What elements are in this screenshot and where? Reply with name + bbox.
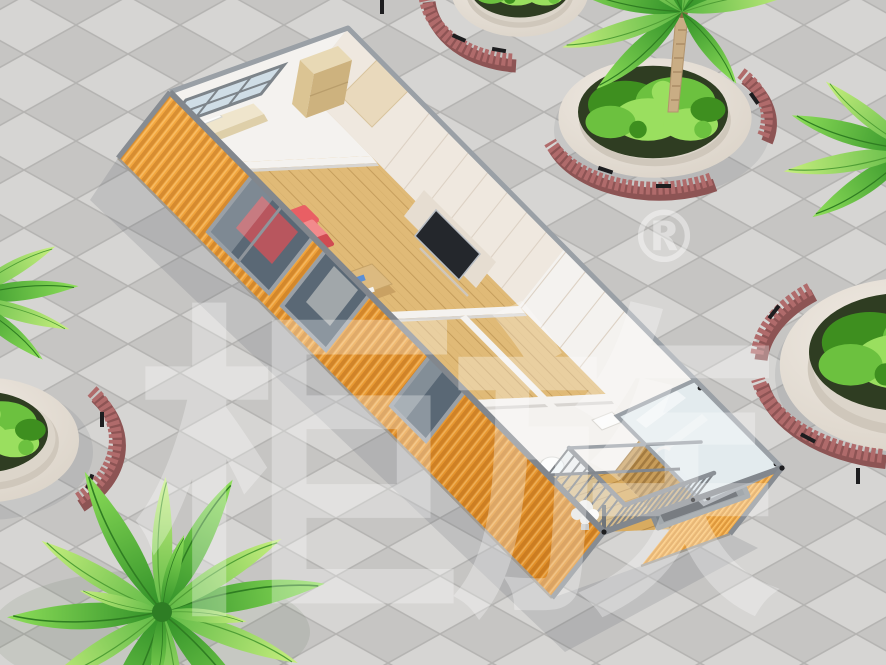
scene-svg: 柜族 ®: [0, 0, 886, 665]
watermark-text: 柜族: [134, 279, 780, 663]
registered-mark: ®: [628, 195, 700, 279]
render-stage: 柜族 ®: [0, 0, 886, 665]
